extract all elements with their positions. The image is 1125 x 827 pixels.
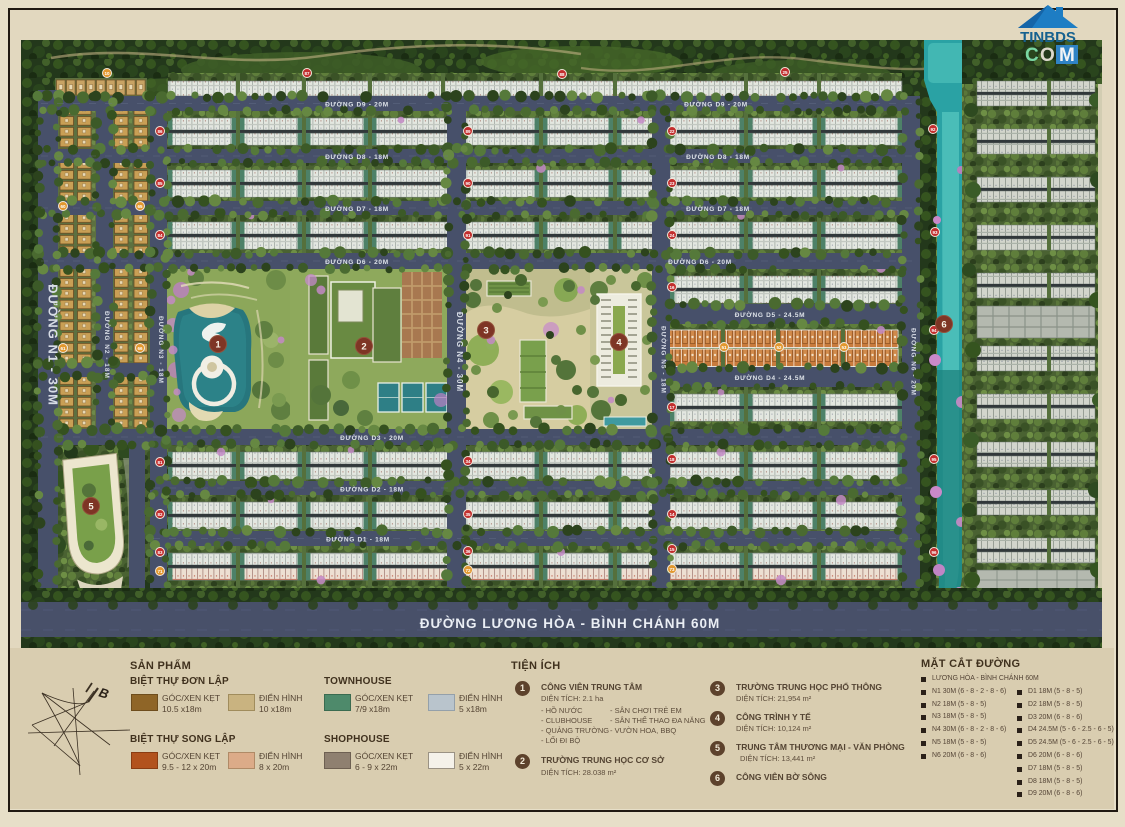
svg-text:ĐƯỜNG N2 - 18M: ĐƯỜNG N2 - 18M xyxy=(103,311,112,379)
svg-text:83: 83 xyxy=(157,550,163,555)
svg-text:81: 81 xyxy=(157,460,163,465)
svg-text:86: 86 xyxy=(157,129,163,134)
svg-text:93: 93 xyxy=(932,230,938,235)
svg-text:88: 88 xyxy=(559,72,565,77)
svg-text:ĐƯỜNG N4 - 30M: ĐƯỜNG N4 - 30M xyxy=(455,312,464,392)
svg-text:ĐƯỜNG D8 - 18M: ĐƯỜNG D8 - 18M xyxy=(686,152,750,161)
svg-text:87: 87 xyxy=(304,71,310,76)
svg-text:ĐƯỜNG D1 - 18M: ĐƯỜNG D1 - 18M xyxy=(326,535,390,544)
svg-text:15: 15 xyxy=(669,547,675,552)
svg-text:94: 94 xyxy=(931,328,937,333)
svg-text:ĐƯỜNG D7 - 18M: ĐƯỜNG D7 - 18M xyxy=(325,204,389,213)
svg-text:25: 25 xyxy=(782,70,788,75)
svg-text:ĐƯỜNG D8 - 18M: ĐƯỜNG D8 - 18M xyxy=(325,152,389,161)
svg-text:85: 85 xyxy=(157,181,163,186)
svg-text:ĐƯỜNG D9 - 20M: ĐƯỜNG D9 - 20M xyxy=(325,100,389,109)
svg-text:ĐƯỜNG D7 - 18M: ĐƯỜNG D7 - 18M xyxy=(686,204,750,213)
svg-text:6: 6 xyxy=(941,320,946,331)
svg-text:ĐƯỜNG N6 - 20M: ĐƯỜNG N6 - 20M xyxy=(910,328,919,396)
svg-text:51: 51 xyxy=(721,345,727,350)
svg-text:66: 66 xyxy=(137,346,143,351)
svg-text:ĐƯỜNG D9 - 20M: ĐƯỜNG D9 - 20M xyxy=(684,100,748,109)
svg-text:36: 36 xyxy=(465,549,471,554)
svg-text:90: 90 xyxy=(465,181,471,186)
svg-text:35: 35 xyxy=(465,512,471,517)
svg-text:ĐƯỜNG N3 - 18M: ĐƯỜNG N3 - 18M xyxy=(157,316,166,384)
svg-text:B: B xyxy=(97,685,111,702)
svg-text:24: 24 xyxy=(669,233,675,238)
svg-text:34: 34 xyxy=(465,459,471,464)
svg-text:ĐƯỜNG D4 - 24.5M: ĐƯỜNG D4 - 24.5M xyxy=(735,373,806,382)
svg-text:C: C xyxy=(1025,45,1039,65)
svg-text:5: 5 xyxy=(88,502,94,513)
svg-text:ĐƯỜNG N1 - 30M: ĐƯỜNG N1 - 30M xyxy=(46,284,61,406)
svg-text:96: 96 xyxy=(931,550,937,555)
svg-text:ĐƯỜNG LƯƠNG HÒA - BÌNH CHÁNH 6: ĐƯỜNG LƯƠNG HÒA - BÌNH CHÁNH 60M xyxy=(420,616,720,631)
svg-text:61: 61 xyxy=(60,346,66,351)
svg-text:M: M xyxy=(1059,45,1075,65)
svg-text:1: 1 xyxy=(215,340,221,351)
svg-text:18: 18 xyxy=(669,457,675,462)
svg-text:14: 14 xyxy=(669,512,675,517)
svg-text:ĐƯỜNG D5 - 24.5M: ĐƯỜNG D5 - 24.5M xyxy=(735,310,806,319)
svg-text:ĐƯỜNG D6 - 20M: ĐƯỜNG D6 - 20M xyxy=(325,257,389,266)
svg-text:3: 3 xyxy=(483,326,488,337)
svg-text:O: O xyxy=(1040,45,1055,65)
svg-text:TINBDS: TINBDS xyxy=(1020,29,1076,46)
svg-text:73: 73 xyxy=(669,567,675,572)
svg-text:91: 91 xyxy=(465,233,471,238)
svg-text:52: 52 xyxy=(776,345,782,350)
svg-text:10: 10 xyxy=(104,71,110,76)
svg-text:84: 84 xyxy=(157,233,163,238)
svg-text:ĐƯỜNG N5 - 18M: ĐƯỜNG N5 - 18M xyxy=(660,326,669,394)
svg-text:22: 22 xyxy=(669,129,675,134)
svg-text:65: 65 xyxy=(137,204,143,209)
svg-text:92: 92 xyxy=(930,127,936,132)
svg-text:4: 4 xyxy=(616,338,622,349)
svg-text:89: 89 xyxy=(465,129,471,134)
svg-text:53: 53 xyxy=(841,345,847,350)
svg-text:ĐƯỜNG D2 - 18M: ĐƯỜNG D2 - 18M xyxy=(340,485,404,494)
svg-text:17: 17 xyxy=(669,405,675,410)
svg-text:72: 72 xyxy=(465,568,471,573)
svg-text:2: 2 xyxy=(361,342,366,353)
svg-text:ĐƯỜNG D3 - 20M: ĐƯỜNG D3 - 20M xyxy=(340,433,404,442)
svg-text:82: 82 xyxy=(157,512,163,517)
svg-text:23: 23 xyxy=(669,181,675,186)
svg-text:16: 16 xyxy=(669,285,675,290)
svg-text:ĐƯỜNG D6 - 20M: ĐƯỜNG D6 - 20M xyxy=(668,257,732,266)
svg-text:95: 95 xyxy=(931,457,937,462)
svg-text:60: 60 xyxy=(60,204,66,209)
svg-text:71: 71 xyxy=(157,569,163,574)
